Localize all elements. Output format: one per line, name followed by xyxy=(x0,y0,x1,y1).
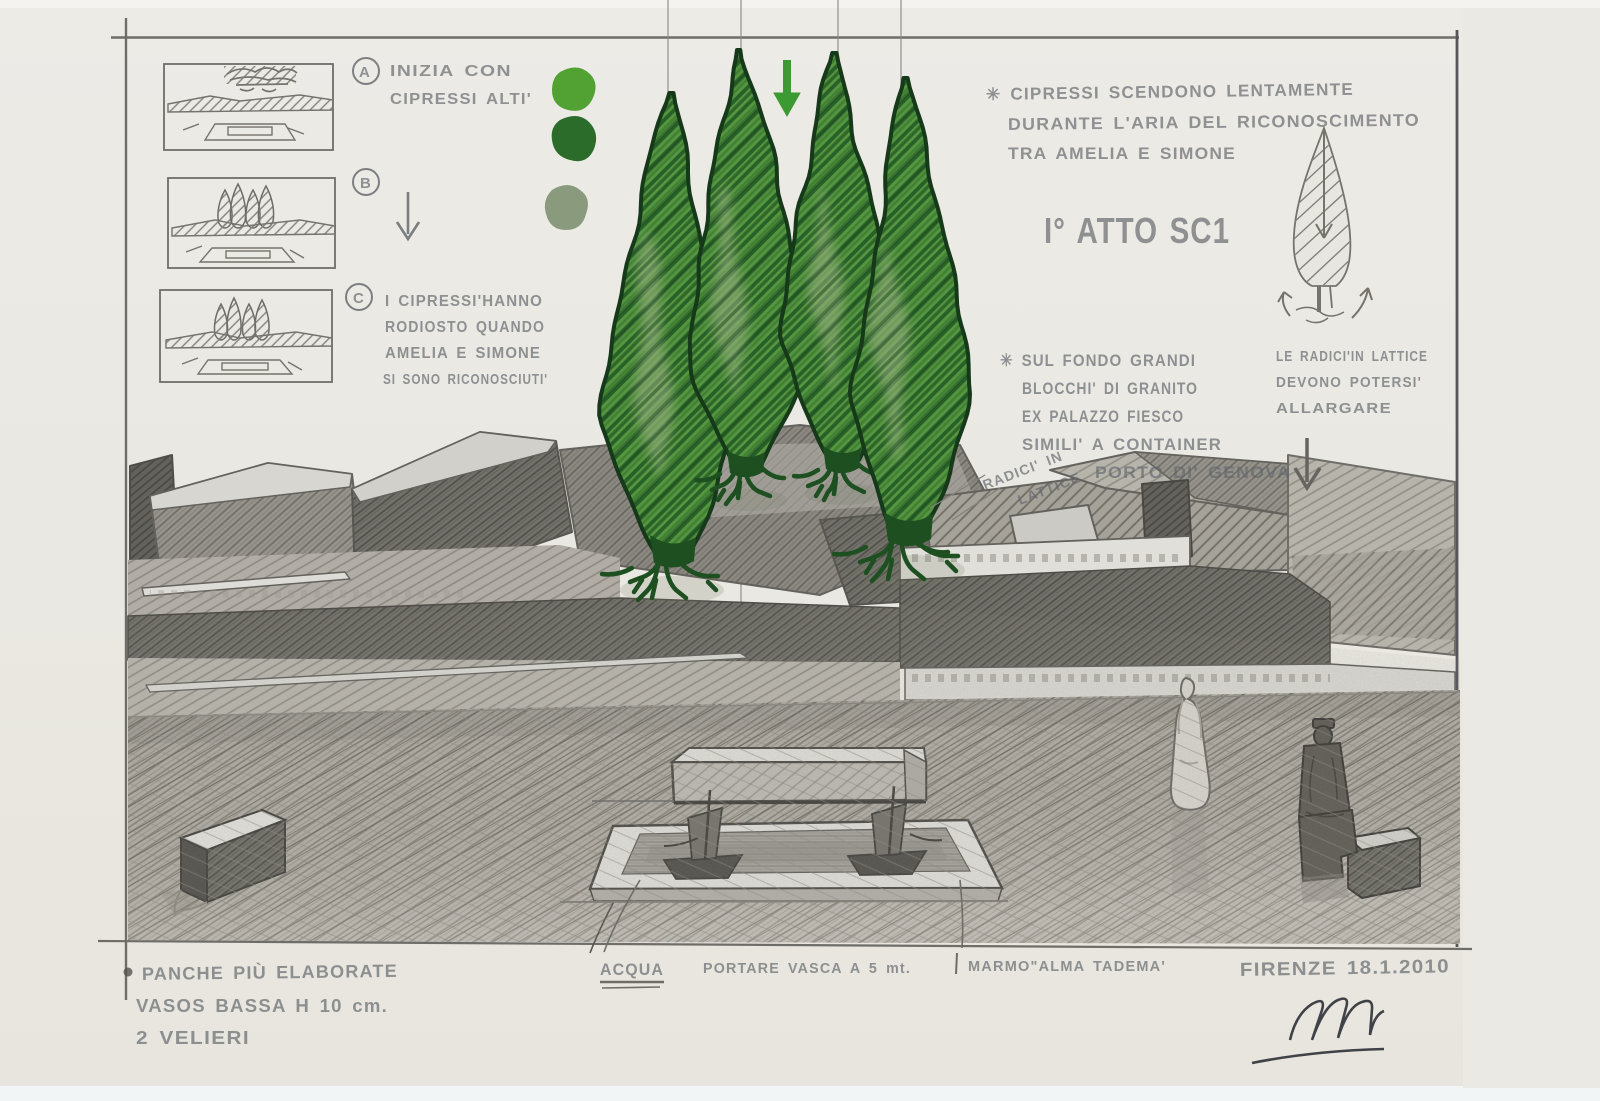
svg-text:A: A xyxy=(359,64,371,81)
svg-text:PORTARE VASCA A 5 mt.: PORTARE VASCA A 5 mt. xyxy=(703,961,911,977)
svg-text:I° ATTO SC1: I° ATTO SC1 xyxy=(1044,210,1230,251)
svg-text:EX PALAZZO FIESCO: EX PALAZZO FIESCO xyxy=(1022,407,1184,426)
svg-text:MARMO"ALMA TADEMA': MARMO"ALMA TADEMA' xyxy=(968,959,1166,975)
svg-text:FIRENZE 18.1.2010: FIRENZE 18.1.2010 xyxy=(1240,956,1450,981)
svg-text:SI SONO RICONOSCIUTI': SI SONO RICONOSCIUTI' xyxy=(383,371,548,388)
svg-text:BLOCCHI' DI GRANITO: BLOCCHI' DI GRANITO xyxy=(1022,379,1198,398)
svg-text:VASOS BASSA H 10 cm.: VASOS BASSA H 10 cm. xyxy=(136,996,388,1016)
svg-text:CIPRESSI ALTI': CIPRESSI ALTI' xyxy=(390,91,532,108)
svg-text:I CIPRESSI'HANNO: I CIPRESSI'HANNO xyxy=(385,293,543,310)
svg-text:ALLARGARE: ALLARGARE xyxy=(1276,401,1392,417)
svg-text:ACQUA: ACQUA xyxy=(600,960,664,979)
svg-text:2 VELIERI: 2 VELIERI xyxy=(136,1028,250,1048)
svg-text:B: B xyxy=(360,175,372,192)
svg-text:TRA AMELIA E SIMONE: TRA AMELIA E SIMONE xyxy=(1008,144,1236,163)
svg-text:C: C xyxy=(353,290,365,307)
svg-text:✳ SUL FONDO GRANDI: ✳ SUL FONDO GRANDI xyxy=(1000,351,1196,370)
svg-text:PORTO DI' GENOVA: PORTO DI' GENOVA xyxy=(1095,463,1291,482)
svg-text:RODIOSTO QUANDO: RODIOSTO QUANDO xyxy=(385,319,545,336)
svg-text:AMELIA E SIMONE: AMELIA E SIMONE xyxy=(385,345,541,362)
svg-text:LE RADICI'IN LATTICE: LE RADICI'IN LATTICE xyxy=(1276,349,1428,365)
svg-text:DEVONO POTERSI': DEVONO POTERSI' xyxy=(1276,375,1422,391)
svg-text:INIZIA CON: INIZIA CON xyxy=(390,63,512,80)
svg-text:PANCHE PIÙ ELABORATE: PANCHE PIÙ ELABORATE xyxy=(142,960,398,984)
